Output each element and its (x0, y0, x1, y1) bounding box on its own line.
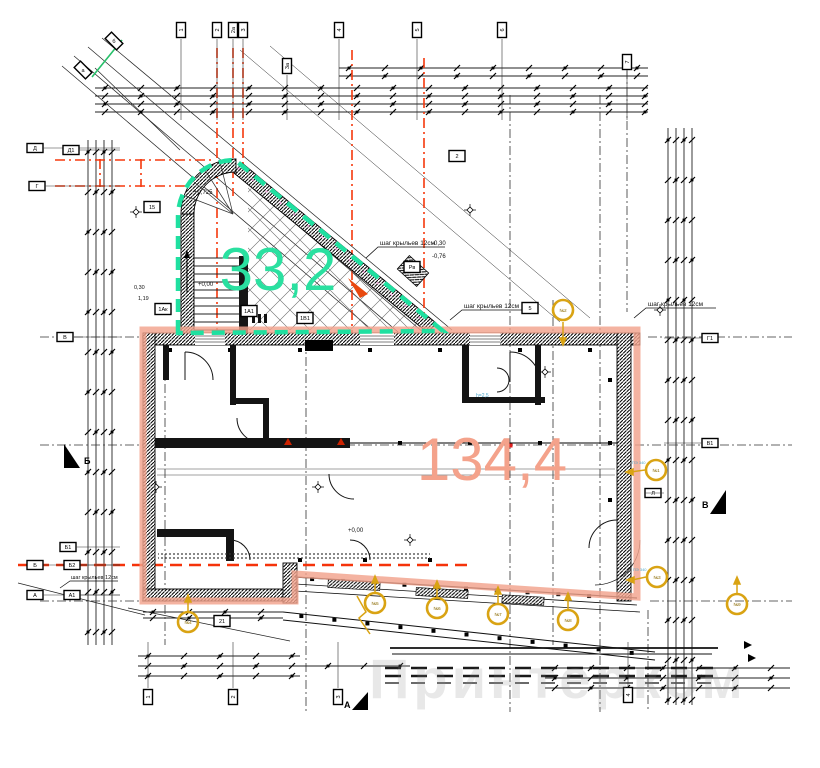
boxed-label: 15 (144, 202, 160, 213)
grid-bubble: 2 (229, 690, 238, 705)
floor-plan-drawing: 33,2 134,4 шаг крыльев 12см шаг крыльев … (0, 0, 820, 768)
grid-bubble-label: 7 (625, 60, 631, 63)
circle-marker-label: №4 (184, 620, 192, 625)
step-note-2: шаг крыльев 12см (464, 303, 520, 310)
wing-area-label: 33,2 (220, 236, 337, 303)
circle-marker: №8 (558, 610, 578, 630)
circle-marker-note: ПЭ 340 (632, 460, 646, 465)
elevation-ramp-top: -0,30 (432, 241, 446, 247)
grid-bubble: Б1 (60, 543, 76, 552)
grid-bubble-label: Б2 (69, 563, 76, 569)
circle-marker: №6 (427, 598, 447, 618)
circle-marker-label: №8 (564, 618, 572, 623)
step-note-1: шаг крыльев 12см (380, 240, 436, 247)
grid-bubble: а (74, 61, 92, 79)
grid-bubble-label: 6 (500, 28, 506, 31)
boxed-label: 2 (449, 151, 465, 162)
svg-text:1В1: 1В1 (300, 316, 310, 322)
column-marker (608, 498, 612, 502)
svg-text:15: 15 (149, 205, 155, 211)
grid-bubble-label: 2 (215, 28, 221, 31)
grid-bubble-label: 1 (179, 28, 185, 31)
grid-bubble: 3 (334, 690, 343, 705)
grid-bubble-label: 1 (146, 695, 152, 698)
grid-bubble: 1 (144, 690, 153, 705)
column-marker (438, 348, 442, 352)
column-marker (518, 348, 522, 352)
grid-bubble-label: 2 (231, 695, 237, 698)
boxed-label: 21 (214, 616, 230, 627)
section-marker: Б (64, 444, 91, 468)
survey-cross (407, 537, 413, 543)
svg-text:1Ак: 1Ак (158, 307, 168, 313)
watermark: Принтерком (369, 647, 747, 710)
svg-text:Рв: Рв (409, 265, 416, 271)
elevation-floor: +0,00 (348, 528, 364, 534)
grid-bubble-label: Д (33, 146, 37, 152)
grid-bubble: 1 (177, 23, 186, 38)
main-area-label: 134,4 (417, 426, 567, 493)
elevation-ramp-mid: -0,76 (432, 254, 446, 260)
survey-cross (315, 484, 321, 490)
column-marker (588, 348, 592, 352)
grid-bubble: Г (29, 182, 45, 191)
grid-bubble-label: Г1 (707, 336, 713, 342)
stipple-band (158, 552, 430, 561)
svg-text:21: 21 (219, 619, 225, 625)
boxed-label: 5 (522, 303, 538, 314)
elevation-stair-base: +0,00 (198, 282, 214, 288)
dim-a: 0,30 (134, 285, 145, 291)
column-marker (368, 348, 372, 352)
grid-bubble-label: Б1 (65, 545, 72, 551)
grid-bubble-label: 3а (285, 62, 291, 69)
grid-bubble-label: Л (651, 491, 655, 497)
grid-bubble: А1 (64, 591, 80, 600)
circle-marker: №2 (553, 300, 573, 320)
grid-bubble-label: 5 (415, 28, 421, 31)
grid-bubble-label: 3 (241, 28, 247, 31)
svg-text:5: 5 (528, 306, 531, 312)
right-wall (617, 333, 631, 601)
grid-bubble: 3а (283, 59, 292, 74)
survey-cross (542, 369, 548, 375)
section-marker: А (344, 692, 368, 710)
grid-bubble: Г1 (702, 334, 718, 343)
circle-marker: №7 (488, 604, 508, 624)
column-marker (608, 378, 612, 382)
boxed-label: 1А1 (241, 306, 257, 317)
floor-plan-canvas: 33,2 134,4 шаг крыльев 12см шаг крыльев … (0, 0, 820, 768)
circle-marker-label: №1 (652, 468, 660, 473)
section-marker-letter: Б (84, 456, 91, 466)
grid-bubble: В (57, 333, 73, 342)
grid-bubble-label: Д1 (68, 148, 75, 154)
survey-cross (133, 209, 139, 215)
grid-bubble: Б (27, 561, 43, 570)
boxed-label: 1В1 (297, 313, 313, 324)
grid-bubble: 2 (213, 23, 222, 38)
step-note-3: шаг крыльев 12см (648, 301, 704, 308)
circle-marker-note: ПЭ 340 (633, 567, 647, 572)
grid-bubble-label: А1 (69, 593, 76, 599)
section-marker-letter: В (702, 500, 709, 510)
section-marker-letter: А (344, 700, 351, 710)
boxed-label: Рв (404, 262, 420, 273)
grid-bubble: 5 (413, 23, 422, 38)
boxed-label: 1Ак (155, 304, 171, 315)
circle-marker-label: №2 (559, 308, 567, 313)
grid-bubble-label: Г (36, 184, 39, 190)
svg-text:2: 2 (455, 154, 458, 160)
circle-marker-label: №9 (733, 602, 741, 607)
step-note-4: шаг крыльев 12см (71, 575, 118, 581)
grid-bubble: Д (27, 144, 43, 153)
circle-marker-label: №6 (433, 606, 441, 611)
circle-marker-label: №5 (371, 601, 379, 606)
grid-bubble: 6 (498, 23, 507, 38)
elevation-stair-top: +0,725 (194, 190, 213, 196)
column-marker (298, 348, 302, 352)
circle-marker-label: №7 (494, 612, 502, 617)
grid-bubble-label: 4 (337, 28, 343, 31)
grid-bubble: 2а (229, 23, 238, 38)
grid-bubble-label: б (112, 39, 115, 45)
grid-bubble: 7 (623, 55, 632, 70)
svg-text:1А1: 1А1 (244, 309, 254, 315)
survey-cross (467, 207, 473, 213)
grid-bubble: б (105, 32, 123, 50)
grid-bubble: 4 (335, 23, 344, 38)
dim-b: 1,19 (138, 296, 149, 302)
section-marker: В (702, 490, 726, 514)
grid-bubble: Б2 (64, 561, 80, 570)
grid-bubble-label: 3 (336, 695, 342, 698)
circle-marker: №9 (727, 594, 747, 614)
grid-bubble: 3 (239, 23, 248, 38)
height-note: h=2,5 (476, 393, 489, 399)
grid-bubble-label: В1 (707, 441, 714, 447)
grid-bubble: Д1 (63, 146, 79, 155)
door-swings (185, 352, 640, 585)
grid-bubble-label: А (33, 593, 37, 599)
grid-bubble: В1 (702, 439, 718, 448)
wall-pier (305, 340, 333, 351)
grid-bubble-label: 2а (231, 26, 237, 33)
grid-bubble-label: Б (33, 563, 37, 569)
grid-bubble-label: В (63, 335, 67, 341)
circle-marker-label: №3 (653, 575, 661, 580)
grid-bubble: А (27, 591, 43, 600)
